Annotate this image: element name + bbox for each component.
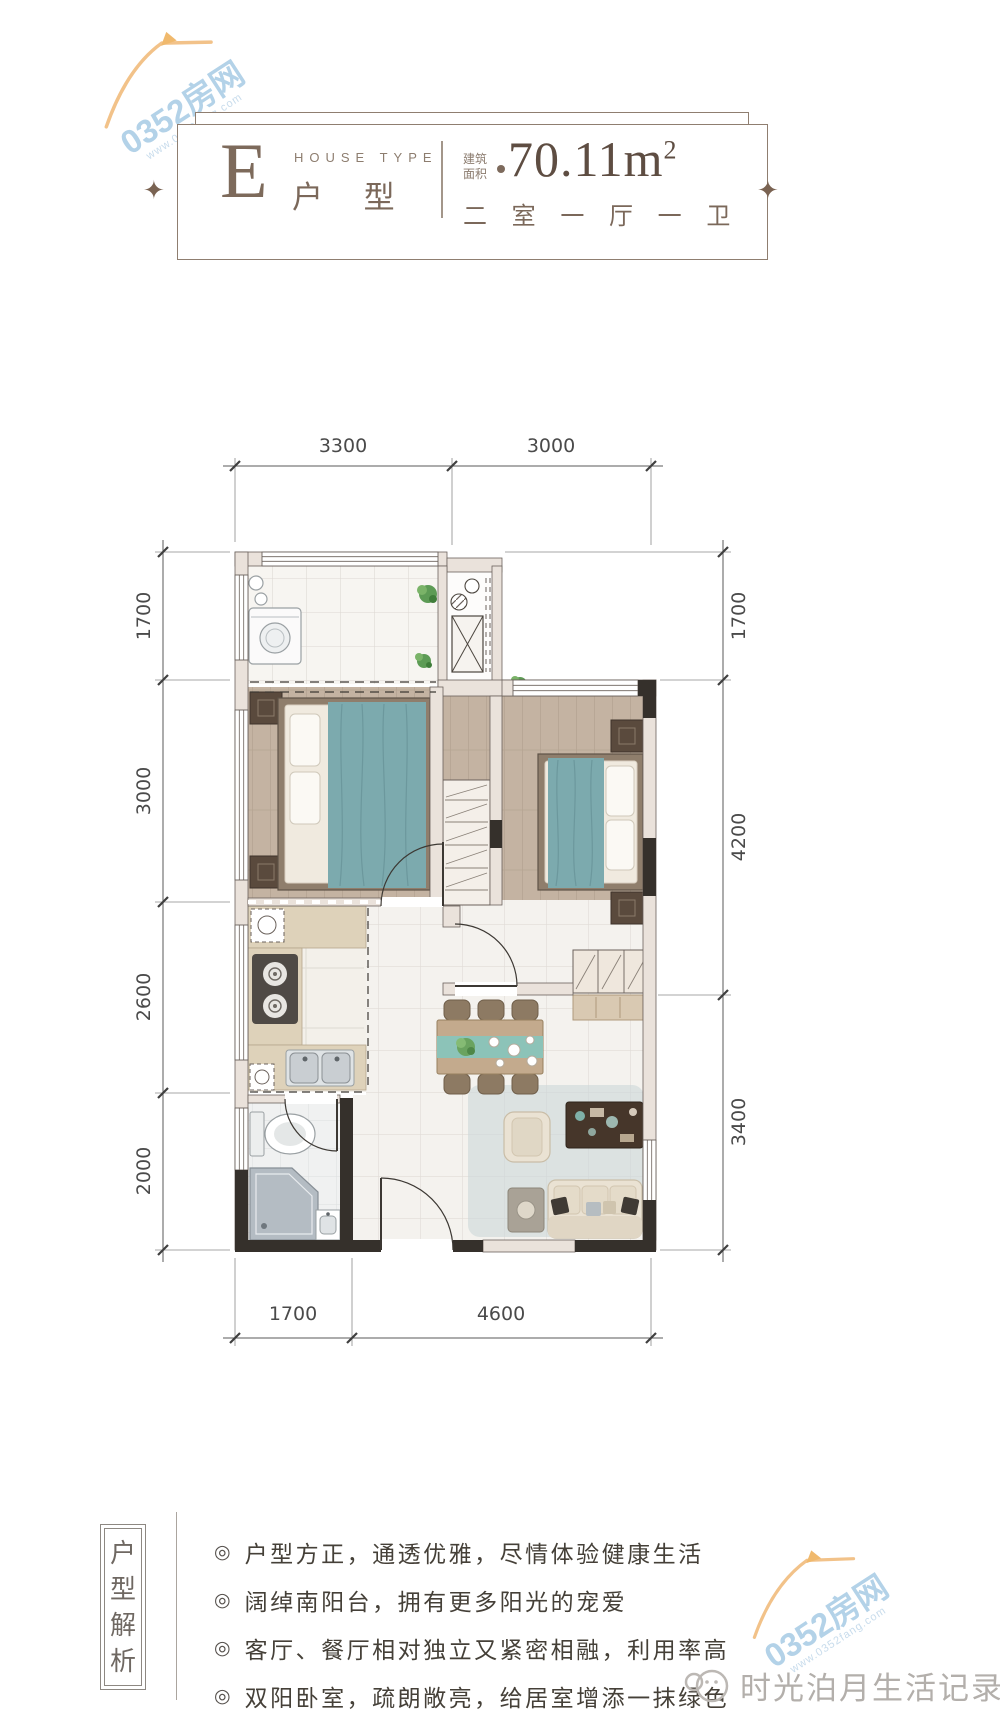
dining-chair: [444, 1074, 470, 1094]
window-icon: [235, 925, 248, 1060]
analysis-title-box: 户 型 解 析: [100, 1524, 146, 1690]
dim-top-2: 3000: [527, 435, 575, 457]
floor-plan: 3300 3000 1700 3000 2600 2000 1700 4200 …: [95, 380, 805, 1365]
bath-vanity-icon: [316, 1210, 340, 1240]
water-heater-icon: [451, 594, 467, 610]
window-icon: [235, 1108, 248, 1170]
dining-chair: [444, 1000, 470, 1020]
window-icon: [513, 680, 638, 696]
floor-drain-icon: [465, 579, 479, 593]
dining-set: [437, 1000, 543, 1094]
dim-right-2: 4200: [728, 813, 750, 861]
hall-closet: [443, 780, 490, 905]
watermark-url-text: www.0352fang.com: [751, 1581, 925, 1700]
nightstand-icon: [250, 856, 282, 888]
bed-double-icon: [278, 698, 430, 890]
dim-right-3: 3400: [728, 1098, 750, 1146]
tv-cabinet: [566, 1102, 643, 1148]
dim-bottom-2: 4600: [477, 1303, 525, 1325]
gas-stove-icon: [252, 954, 298, 1024]
watermark-brand-text: 0352房网: [733, 1553, 919, 1690]
area-value: 70.11m2: [508, 130, 678, 188]
sofa: [548, 1180, 642, 1238]
laundry-faucet-icon: [249, 576, 263, 590]
small-appliance-icon: [251, 909, 284, 942]
diamond-icon-right: ✦: [757, 177, 779, 203]
dim-left-3: 2600: [133, 973, 155, 1021]
analysis-divider: [176, 1512, 177, 1700]
house-type-english: HOUSE TYPE: [294, 150, 438, 165]
dim-left-2: 3000: [133, 767, 155, 815]
list-item: ◎ 阔绰南阳台，拥有更多阳光的宠爱: [214, 1576, 729, 1624]
window-icon: [235, 710, 248, 880]
bed-double-icon: [538, 754, 643, 890]
list-item: ◎ 双阳卧室，疏朗敞亮，给居室增添一抹绿色: [214, 1672, 729, 1720]
watermark-site-bottomright: 0352房网 www.0352fang.com: [704, 1508, 925, 1699]
diamond-icon-left: ✦: [143, 177, 165, 203]
dim-left-4: 2000: [133, 1147, 155, 1195]
armchair: [504, 1112, 550, 1162]
sideboard: [573, 995, 643, 1020]
toilet-icon: [250, 1112, 315, 1156]
nightstand-icon: [611, 720, 643, 752]
window-icon: [235, 575, 248, 660]
dining-chair: [512, 1074, 538, 1094]
dining-chair: [512, 1000, 538, 1020]
gas-meter-icon: [250, 1064, 274, 1090]
bullet-icon: ◎: [214, 1687, 231, 1706]
bullet-icon: ◎: [214, 1591, 231, 1610]
header-divider: [441, 141, 443, 218]
bullet-icon: ◎: [214, 1639, 231, 1658]
dim-top-1: 3300: [319, 435, 367, 457]
bullet-icon: ◎: [214, 1543, 231, 1562]
double-sink-icon: [286, 1050, 354, 1086]
dim-left-1: 1700: [133, 592, 155, 640]
side-table: [508, 1188, 544, 1232]
roof-swoosh-icon: [725, 1522, 877, 1644]
house-type-letter: E: [220, 132, 268, 210]
area-dot-icon: [497, 165, 505, 173]
analysis-bullet-list: ◎ 户型方正，通透优雅，尽情体验健康生活 ◎ 阔绰南阳台，拥有更多阳光的宠爱 ◎…: [214, 1528, 729, 1720]
dim-bottom-1: 1700: [269, 1303, 317, 1325]
publisher-name-text: 时光泊月生活记录者: [740, 1663, 1000, 1708]
nightstand-icon: [250, 692, 282, 724]
house-type-chinese: 户 型: [292, 172, 411, 217]
area-label: 建筑 面积: [463, 152, 487, 182]
room-layout-text: 二 室 一 厅 一 卫: [463, 196, 739, 231]
dining-chair: [478, 1000, 504, 1020]
analysis-title-inner-frame: 户 型 解 析: [104, 1528, 142, 1686]
dim-right-1: 1700: [728, 592, 750, 640]
list-item: ◎ 户型方正，通透优雅，尽情体验健康生活: [214, 1528, 729, 1576]
watermark-publisher: 时光泊月生活记录者: [682, 1662, 1000, 1708]
nightstand-icon: [611, 892, 643, 924]
utility-shaft: [447, 572, 492, 683]
dining-chair: [478, 1074, 504, 1094]
vent-shaft-icon: [452, 616, 483, 672]
list-item: ◎ 客厅、餐厅相对独立又紧密相融，利用率高: [214, 1624, 729, 1672]
wardrobe-icon: [573, 950, 650, 993]
window-icon: [262, 552, 438, 566]
